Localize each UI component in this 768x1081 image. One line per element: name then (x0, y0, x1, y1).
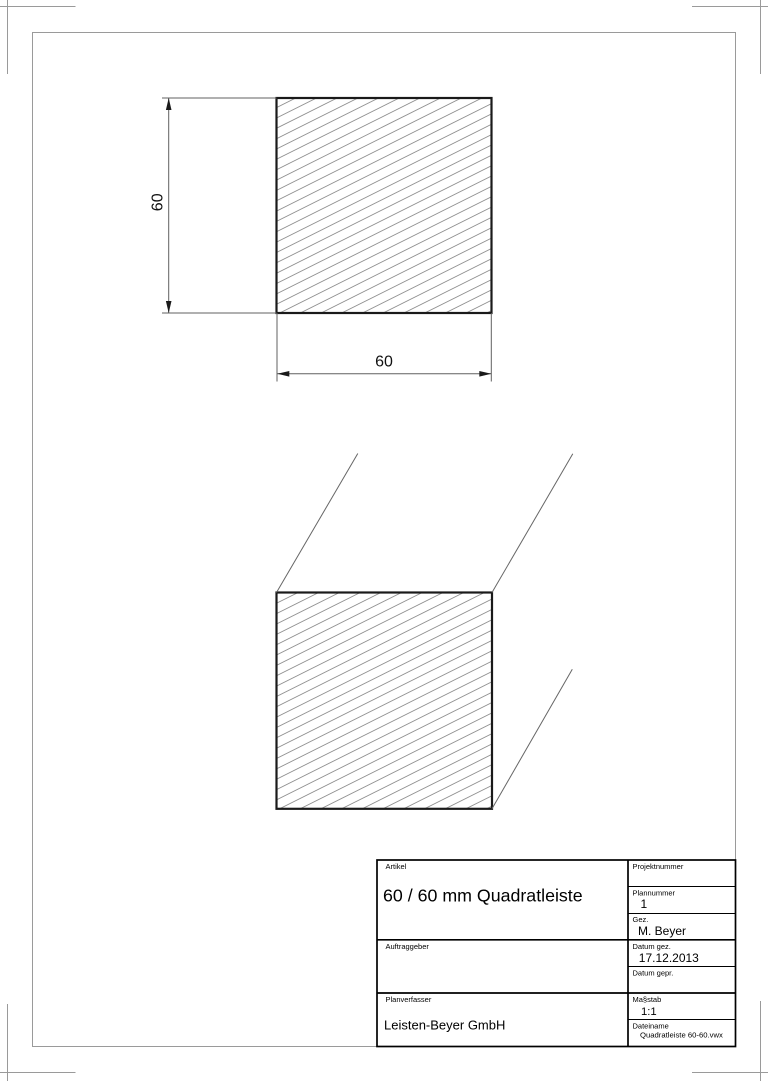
svg-text:17.12.2013: 17.12.2013 (639, 951, 699, 965)
svg-text:Artikel: Artikel (386, 862, 407, 871)
svg-text:M. Beyer: M. Beyer (638, 924, 686, 938)
svg-text:Ma§stab: Ma§stab (633, 995, 662, 1004)
svg-text:Auftraggeber: Auftraggeber (386, 942, 430, 951)
svg-text:Dateiname: Dateiname (633, 1022, 669, 1031)
svg-text:60 / 60 mm Quadratleiste: 60 / 60 mm Quadratleiste (383, 885, 583, 905)
svg-text:60: 60 (149, 193, 166, 211)
svg-text:1:1: 1:1 (641, 1006, 657, 1018)
svg-text:Datum gepr.: Datum gepr. (633, 968, 674, 977)
svg-text:Planverfasser: Planverfasser (386, 995, 432, 1004)
svg-text:Leisten-Beyer GmbH: Leisten-Beyer GmbH (384, 1018, 505, 1033)
svg-text:Projektnummer: Projektnummer (633, 862, 684, 871)
svg-text:1: 1 (641, 897, 648, 911)
svg-text:Quadratleiste 60-60.vwx: Quadratleiste 60-60.vwx (640, 1031, 723, 1040)
svg-text:60: 60 (375, 354, 393, 371)
svg-text:Gez.: Gez. (633, 915, 649, 924)
svg-text:Datum gez.: Datum gez. (633, 942, 671, 951)
svg-text:Plannummer: Plannummer (633, 889, 676, 898)
